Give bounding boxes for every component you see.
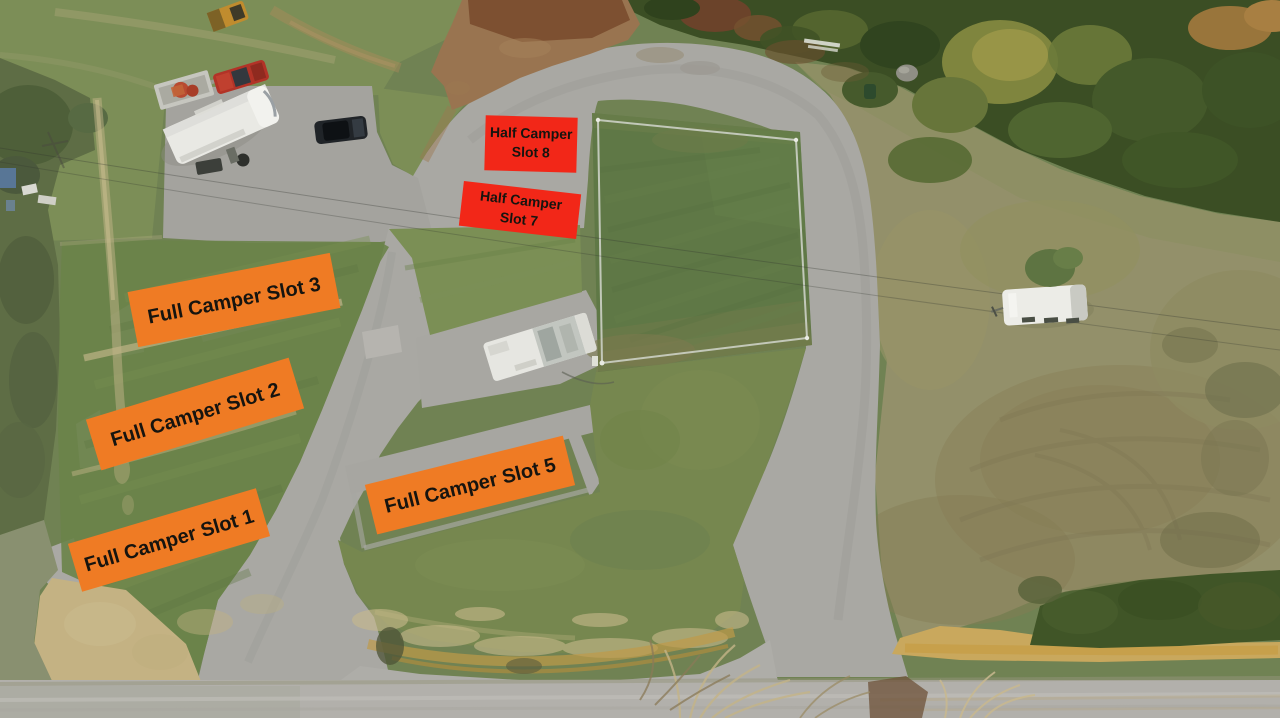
svg-text:Slot 8: Slot 8	[512, 144, 551, 161]
svg-text:Half Camper: Half Camper	[490, 124, 573, 142]
